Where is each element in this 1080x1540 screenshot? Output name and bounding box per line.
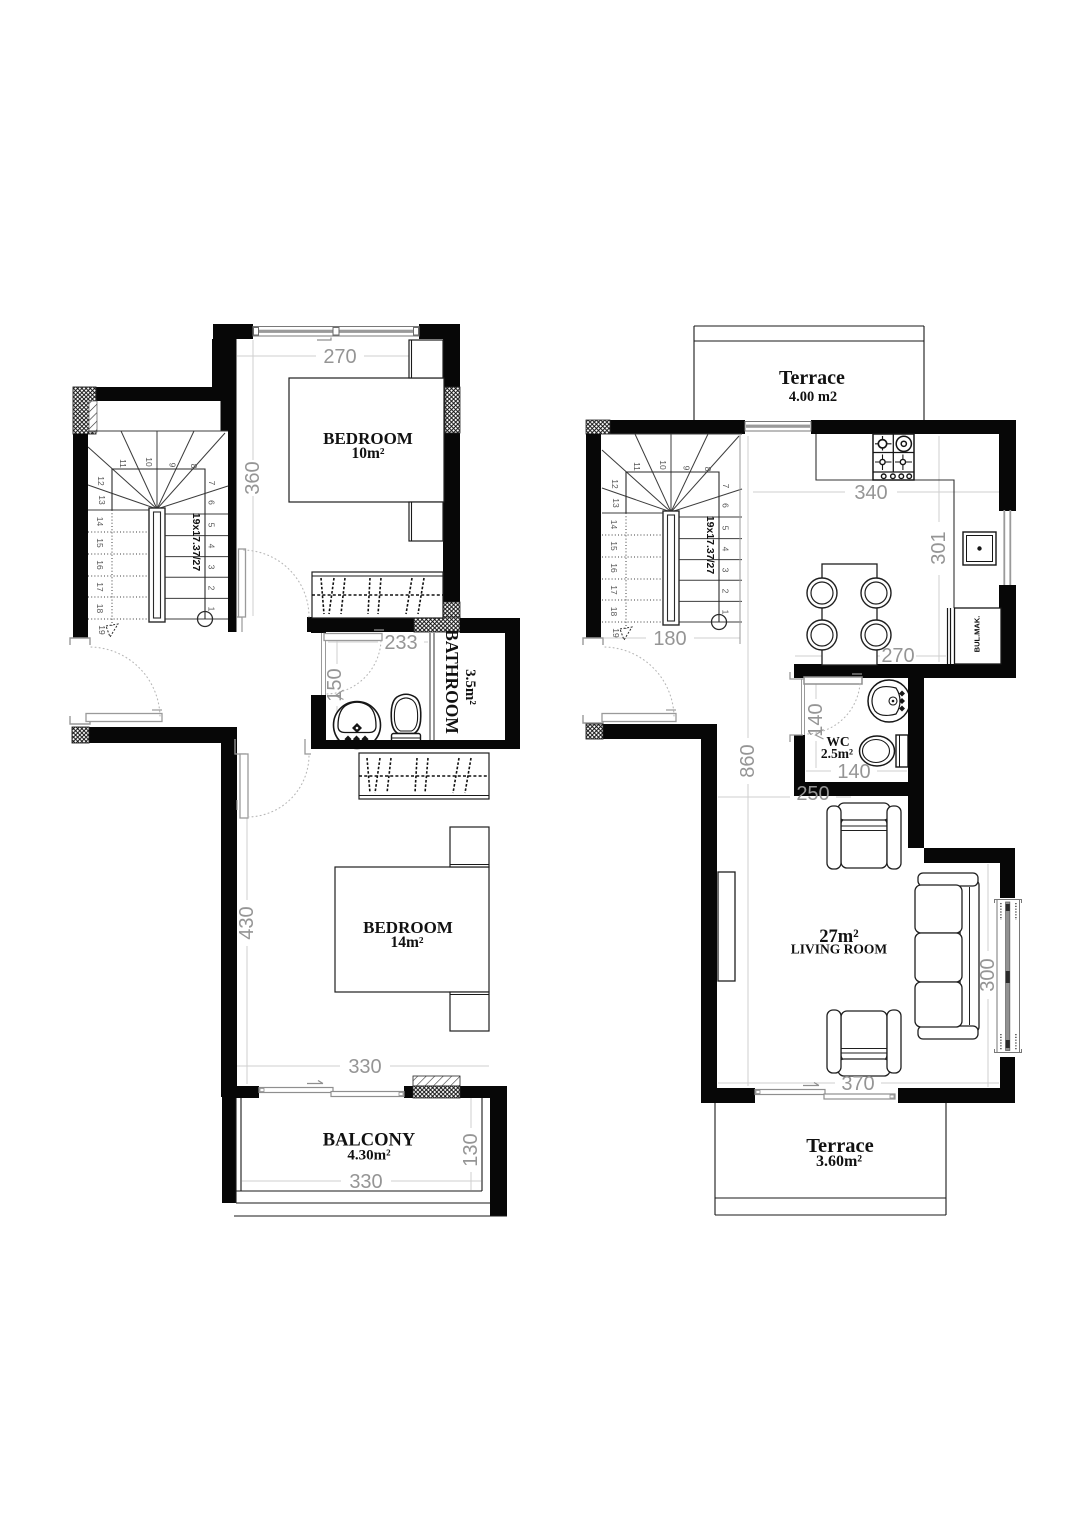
svg-text:15: 15 — [95, 538, 105, 548]
svg-text:140: 140 — [805, 703, 827, 736]
svg-text:9: 9 — [168, 463, 178, 468]
svg-text:3.5m²: 3.5m² — [462, 669, 478, 705]
svg-text:2.5m²: 2.5m² — [821, 746, 853, 761]
svg-text:1: 1 — [207, 607, 217, 612]
svg-text:250: 250 — [796, 783, 829, 805]
svg-text:300: 300 — [977, 958, 999, 991]
svg-text:140: 140 — [837, 761, 870, 783]
svg-text:130: 130 — [460, 1133, 482, 1166]
svg-text:11: 11 — [118, 459, 128, 468]
svg-text:860: 860 — [737, 744, 759, 777]
svg-text:340: 340 — [854, 482, 887, 504]
svg-text:14m²: 14m² — [390, 934, 423, 951]
svg-text:330: 330 — [349, 1171, 382, 1193]
svg-text:19: 19 — [97, 625, 107, 635]
svg-text:13: 13 — [97, 495, 107, 505]
svg-text:10: 10 — [144, 457, 154, 467]
svg-text:BUL.MAK.: BUL.MAK. — [973, 616, 982, 653]
svg-text:270: 270 — [881, 645, 914, 667]
svg-text:4.30m²: 4.30m² — [347, 1148, 391, 1164]
svg-text:330: 330 — [348, 1056, 381, 1078]
svg-text:430: 430 — [236, 906, 258, 939]
svg-text:Terrace: Terrace — [779, 367, 845, 389]
svg-text:7: 7 — [207, 481, 217, 486]
svg-text:270: 270 — [323, 346, 356, 368]
svg-text:17: 17 — [95, 582, 105, 592]
svg-text:LIVING ROOM: LIVING ROOM — [791, 942, 888, 957]
svg-text:150: 150 — [324, 668, 346, 701]
svg-text:12: 12 — [96, 476, 106, 486]
svg-text:4: 4 — [207, 544, 217, 549]
svg-text:19x17.37/27: 19x17.37/27 — [190, 513, 202, 572]
svg-text:16: 16 — [95, 560, 105, 570]
svg-text:BATHROOM: BATHROOM — [442, 629, 462, 734]
svg-text:8: 8 — [189, 464, 199, 469]
svg-text:3.60m²: 3.60m² — [816, 1153, 862, 1170]
svg-text:6: 6 — [207, 500, 217, 505]
svg-text:10m²: 10m² — [351, 445, 384, 462]
svg-text:3: 3 — [207, 565, 217, 570]
svg-text:5: 5 — [207, 523, 217, 528]
svg-text:180: 180 — [653, 628, 686, 650]
svg-text:370: 370 — [841, 1073, 874, 1095]
svg-text:4.00 m2: 4.00 m2 — [789, 389, 837, 405]
svg-text:360: 360 — [242, 461, 264, 494]
svg-text:233: 233 — [384, 632, 417, 654]
svg-text:301: 301 — [928, 531, 950, 564]
svg-text:14: 14 — [95, 517, 105, 527]
svg-text:18: 18 — [95, 604, 105, 614]
svg-text:2: 2 — [207, 586, 217, 591]
